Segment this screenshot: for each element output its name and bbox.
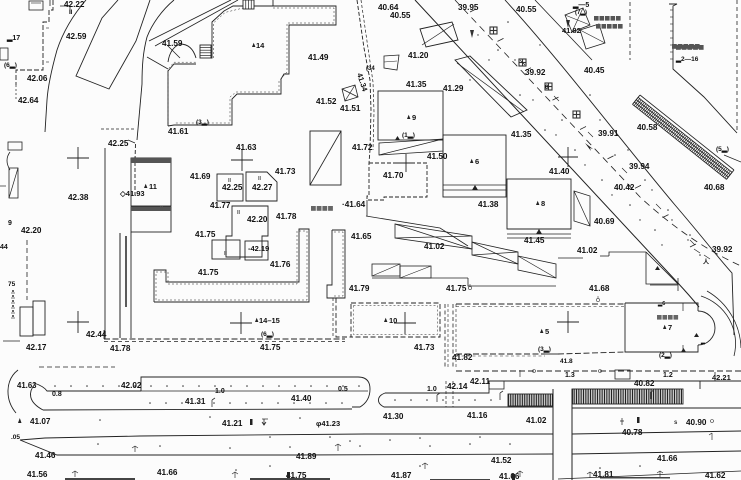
svg-text:41.8: 41.8 xyxy=(560,358,573,365)
svg-text:41.61: 41.61 xyxy=(168,127,189,136)
svg-text:41.59: 41.59 xyxy=(162,39,183,48)
svg-text:41.35: 41.35 xyxy=(511,130,532,139)
svg-text:40.55: 40.55 xyxy=(516,5,537,14)
svg-text:1.0: 1.0 xyxy=(427,386,437,393)
svg-text:40.90: 40.90 xyxy=(686,418,707,427)
svg-text:41.52: 41.52 xyxy=(316,97,337,106)
svg-text:(1▂): (1▂) xyxy=(402,132,415,139)
svg-text:42.25: 42.25 xyxy=(222,183,243,192)
svg-text:9: 9 xyxy=(412,113,416,122)
svg-text:41.75: 41.75 xyxy=(446,284,467,293)
svg-text:41.40: 41.40 xyxy=(549,167,570,176)
svg-text:42.38: 42.38 xyxy=(68,193,89,202)
svg-text:▂17: ▂17 xyxy=(6,35,20,42)
svg-text:(34: (34 xyxy=(366,66,375,72)
svg-text:41.87: 41.87 xyxy=(391,471,412,480)
svg-text:41.35: 41.35 xyxy=(406,80,427,89)
svg-text:44: 44 xyxy=(0,244,8,251)
svg-text:◇41.93: ◇41.93 xyxy=(119,189,145,198)
svg-text:10: 10 xyxy=(389,316,397,325)
svg-text:7: 7 xyxy=(668,323,672,332)
svg-text:42.14: 42.14 xyxy=(447,382,468,391)
svg-text:41.73: 41.73 xyxy=(414,343,435,352)
svg-text:41.29: 41.29 xyxy=(443,84,464,93)
svg-text:40.69: 40.69 xyxy=(594,217,615,226)
svg-text:(6▂): (6▂) xyxy=(261,331,274,338)
svg-text:41.40: 41.40 xyxy=(291,394,312,403)
svg-text:41.02: 41.02 xyxy=(577,246,598,255)
svg-text:(3▂): (3▂) xyxy=(196,119,209,126)
svg-text:42.64: 42.64 xyxy=(18,96,39,105)
svg-text:41.65: 41.65 xyxy=(351,232,372,241)
svg-text:41.73: 41.73 xyxy=(275,167,296,176)
svg-text:40.68: 40.68 xyxy=(704,183,725,192)
svg-text:42.25: 42.25 xyxy=(108,139,129,148)
svg-text:(2▂): (2▂) xyxy=(659,352,672,359)
svg-text:5: 5 xyxy=(545,327,549,336)
svg-text:0.8: 0.8 xyxy=(52,391,62,398)
svg-text:42.22: 42.22 xyxy=(64,0,85,9)
svg-text:41.77: 41.77 xyxy=(210,201,231,210)
svg-text:41.69: 41.69 xyxy=(190,172,211,181)
svg-text:11: 11 xyxy=(149,182,157,191)
svg-text:41.16: 41.16 xyxy=(467,411,488,420)
svg-text:40.42: 40.42 xyxy=(614,183,635,192)
svg-text:41.75: 41.75 xyxy=(260,343,281,352)
svg-text:40.55: 40.55 xyxy=(390,11,411,20)
svg-text:41.70: 41.70 xyxy=(383,171,404,180)
svg-text:41.02: 41.02 xyxy=(526,416,547,425)
svg-text:▂2—16: ▂2—16 xyxy=(675,56,699,63)
svg-text:▂6: ▂6 xyxy=(657,301,665,307)
svg-text:42.20: 42.20 xyxy=(21,226,42,235)
svg-text:(6▂): (6▂) xyxy=(4,62,17,69)
svg-text:41.82: 41.82 xyxy=(562,26,581,35)
svg-text:0: 0 xyxy=(545,84,549,91)
svg-text:1.2: 1.2 xyxy=(663,372,673,379)
svg-text:75: 75 xyxy=(8,281,16,288)
svg-text:41.75: 41.75 xyxy=(198,268,219,277)
svg-text:·41.64: ·41.64 xyxy=(342,200,366,209)
svg-text:-42.19: -42.19 xyxy=(248,244,269,253)
svg-text:40.45: 40.45 xyxy=(584,66,605,75)
svg-text:42.27: 42.27 xyxy=(252,183,273,192)
svg-text:40.82: 40.82 xyxy=(634,379,655,388)
svg-text:39.94: 39.94 xyxy=(629,162,650,171)
svg-text:14–15: 14–15 xyxy=(259,316,280,325)
svg-text:41.66: 41.66 xyxy=(657,454,678,463)
svg-text:II: II xyxy=(160,206,164,212)
svg-text:0.5: 0.5 xyxy=(338,386,348,393)
svg-text:φ41.23: φ41.23 xyxy=(316,419,340,428)
svg-text:6: 6 xyxy=(475,157,479,166)
svg-text:41.79: 41.79 xyxy=(349,284,370,293)
svg-text:41.45: 41.45 xyxy=(524,236,545,245)
svg-text:41.56: 41.56 xyxy=(27,470,48,479)
svg-text:II: II xyxy=(228,178,232,184)
svg-text:1.0: 1.0 xyxy=(215,388,225,395)
svg-text:42.06: 42.06 xyxy=(27,74,48,83)
svg-text:▂—5: ▂—5 xyxy=(572,2,589,9)
svg-text:41.38: 41.38 xyxy=(478,200,499,209)
svg-text:8: 8 xyxy=(541,199,545,208)
svg-text:42.02: 42.02 xyxy=(121,381,142,390)
svg-text:41.30: 41.30 xyxy=(383,412,404,421)
svg-text:40.58: 40.58 xyxy=(637,123,658,132)
svg-text:41.52: 41.52 xyxy=(491,456,512,465)
svg-text:42.11: 42.11 xyxy=(470,377,490,386)
svg-text:II: II xyxy=(69,10,73,16)
svg-text:41.89: 41.89 xyxy=(296,452,317,461)
svg-text:40.78: 40.78 xyxy=(622,428,643,437)
svg-text:II: II xyxy=(224,251,228,257)
svg-text:39.91: 39.91 xyxy=(598,129,619,138)
svg-text:42.20: 42.20 xyxy=(247,215,268,224)
svg-text:42.44: 42.44 xyxy=(86,330,107,339)
svg-text:9: 9 xyxy=(8,220,12,227)
svg-text:41.78: 41.78 xyxy=(110,344,131,353)
svg-text:39.92: 39.92 xyxy=(525,68,546,77)
svg-text:41.46: 41.46 xyxy=(35,451,56,460)
svg-text:41.51: 41.51 xyxy=(340,104,361,113)
svg-text:41.76: 41.76 xyxy=(270,260,291,269)
svg-text:42.17: 42.17 xyxy=(26,343,47,352)
svg-text:41.20: 41.20 xyxy=(408,51,429,60)
svg-text:41.66: 41.66 xyxy=(499,472,520,480)
svg-text:II: II xyxy=(237,210,241,216)
svg-text:39.92: 39.92 xyxy=(712,245,733,254)
svg-text:41.66: 41.66 xyxy=(157,468,178,477)
svg-text:39.95: 39.95 xyxy=(458,3,479,12)
svg-text:41.31: 41.31 xyxy=(185,397,206,406)
svg-text:41.50: 41.50 xyxy=(427,152,448,161)
svg-text:II: II xyxy=(258,176,262,182)
svg-text:41.63: 41.63 xyxy=(236,143,257,152)
svg-text:.05: .05 xyxy=(11,434,20,441)
svg-text:41.21: 41.21 xyxy=(222,419,243,428)
svg-text:14: 14 xyxy=(256,41,265,50)
svg-text:1.3: 1.3 xyxy=(565,372,575,379)
svg-text:(3▂): (3▂) xyxy=(538,346,551,353)
svg-text:41.72: 41.72 xyxy=(352,143,373,152)
svg-text:41.68: 41.68 xyxy=(589,284,610,293)
svg-text:41.78: 41.78 xyxy=(276,212,297,221)
svg-text:41.02: 41.02 xyxy=(424,242,445,251)
svg-text:41.75: 41.75 xyxy=(195,230,216,239)
svg-text:(5▂): (5▂) xyxy=(716,146,729,153)
svg-text:41.49: 41.49 xyxy=(308,53,329,62)
svg-text:41.82: 41.82 xyxy=(452,353,473,362)
svg-text:42.59: 42.59 xyxy=(66,32,87,41)
svg-text:人: 人 xyxy=(703,258,710,266)
svg-text:▂: ▂ xyxy=(700,339,705,345)
svg-text:41.07: 41.07 xyxy=(30,417,51,426)
